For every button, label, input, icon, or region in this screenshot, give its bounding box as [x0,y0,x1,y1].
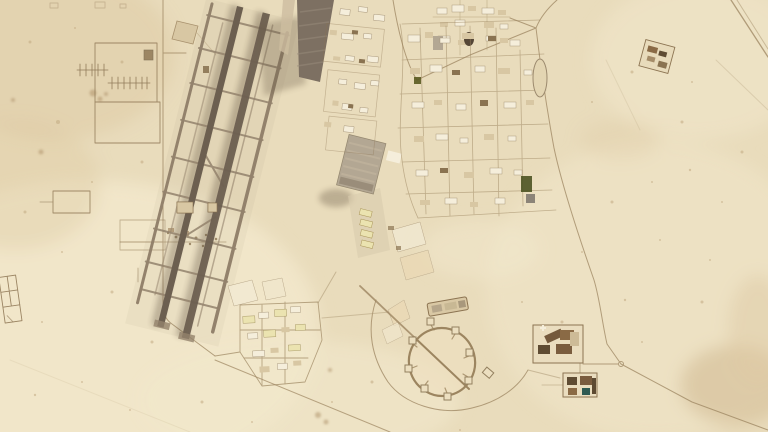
junction-pad [414,77,421,84]
compound-lower [563,373,597,397]
satellite-image [0,0,768,432]
green-roof-building [521,176,532,192]
gray-building [526,194,535,203]
compound-upper [533,325,583,363]
running-track [533,59,547,97]
